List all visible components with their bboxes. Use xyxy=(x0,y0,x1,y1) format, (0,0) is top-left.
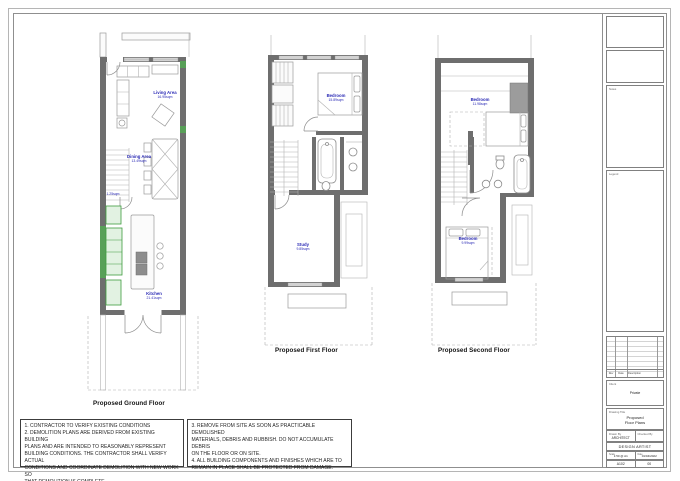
number-rev-row: A102 00 xyxy=(606,460,664,468)
ground-floor-plan xyxy=(88,33,198,390)
client-label: Client xyxy=(609,382,616,386)
first-floor-plan xyxy=(265,35,372,345)
drawn-checked-row: Drawn By ARCHITECT Checked By xyxy=(606,430,664,442)
revision-table-header: Rev Date Description xyxy=(607,369,663,377)
drawing-title-box: Drawing Title Proposed Floor Plans xyxy=(606,408,664,430)
titleblock-legend-box: Legend xyxy=(606,170,664,332)
second-floor-plan xyxy=(432,35,536,345)
revision-value: 00 xyxy=(636,462,664,466)
drawing-number-cell: A102 xyxy=(606,460,636,468)
drawn-by-value: ARCHITECT xyxy=(607,436,635,440)
room-label-bedroom-first: Bedroom 15.89sqm xyxy=(311,93,361,102)
drawn-by-cell: Drawn By ARCHITECT xyxy=(606,430,636,442)
drawing-number: A102 xyxy=(607,462,635,466)
scale-date-row: Scale 1:50 @ A1 Date 01/04/2022 xyxy=(606,451,664,460)
scale-cell: Scale 1:50 @ A1 xyxy=(606,451,636,460)
date-cell: Date 01/04/2022 xyxy=(636,451,665,460)
first-floor-title: Proposed First Floor xyxy=(275,347,338,354)
drawing-sheet: Proposed Ground Floor Proposed First Flo… xyxy=(0,0,680,481)
ground-floor-title: Proposed Ground Floor xyxy=(93,400,165,407)
client-box: Client Private xyxy=(606,380,664,406)
client-name: Private xyxy=(607,391,663,395)
room-label-dining-area: Dining Area 13.49sqm xyxy=(114,154,164,163)
titleblock-notes-label: Notes xyxy=(609,87,616,91)
company-name: DESIGN ARTIST xyxy=(607,445,663,449)
room-label-living-area: Living Area 16.95sqm xyxy=(140,90,190,99)
titleblock-box-2 xyxy=(606,50,664,83)
checked-by-label: Checked By xyxy=(638,432,653,436)
room-label-study: Study 9.85sqm xyxy=(278,242,328,251)
room-label-kitchen: Kitchen 21.41sqm xyxy=(129,291,179,300)
titleblock-notes-box: Notes xyxy=(606,85,664,168)
revision-rev-header: Rev xyxy=(607,372,615,375)
room-label-bedroom-second-upper: Bedroom 11.98sqm xyxy=(455,97,505,106)
titleblock-logo-box xyxy=(606,16,664,48)
room-label-bedroom-second-lower: Bedroom 9.99sqm xyxy=(443,236,493,245)
room-label-wc: 1.25sqm xyxy=(96,192,130,196)
revision-table: Rev Date Description xyxy=(606,336,664,378)
checked-by-cell: Checked By xyxy=(636,430,665,442)
titleblock-legend-label: Legend xyxy=(609,172,618,176)
revision-desc-header: Description xyxy=(627,372,663,375)
floor-plan-linework xyxy=(0,0,680,481)
general-notes-left: 1. CONTRACTOR TO VERIFY EXISTING CONDITI… xyxy=(20,419,184,467)
date-value: 01/04/2022 xyxy=(636,454,664,458)
company-box: DESIGN ARTIST xyxy=(606,442,664,451)
drawing-title: Proposed Floor Plans xyxy=(607,415,663,425)
general-notes-right: 3. REMOVE FROM SITE AS SOON AS PRACTICAB… xyxy=(187,419,352,467)
revision-cell: 00 xyxy=(636,460,665,468)
second-floor-title: Proposed Second Floor xyxy=(438,347,510,354)
revision-date-header: Date xyxy=(615,372,627,375)
drawing-title-label: Drawing Title xyxy=(609,410,625,414)
scale-value: 1:50 @ A1 xyxy=(607,454,635,458)
